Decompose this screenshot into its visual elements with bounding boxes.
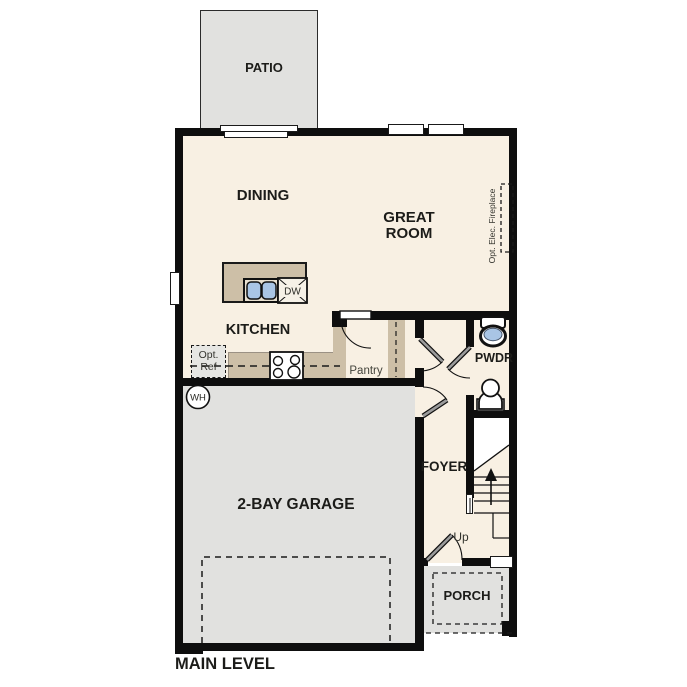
floor-plan: DW WH PATIO DINING GREAT ROOM KITCHEN Pa… bbox=[0, 0, 687, 687]
pantry-door-icon bbox=[340, 311, 371, 348]
room-label-foyer: FOYER bbox=[414, 459, 474, 474]
stairs bbox=[470, 418, 509, 538]
fireplace-label: Opt. Elec. Fireplace bbox=[487, 181, 497, 271]
dishwasher-label: DW bbox=[284, 287, 301, 298]
room-label-dining: DINING bbox=[213, 188, 313, 205]
kitchen-sink-icon bbox=[244, 279, 278, 302]
room-label-garage: 2-BAY GARAGE bbox=[236, 496, 356, 513]
fireplace-dashed-outline bbox=[501, 184, 513, 252]
stove-icon bbox=[270, 352, 303, 380]
pedestal-sink-icon bbox=[477, 380, 504, 412]
toilet-icon bbox=[481, 317, 506, 346]
garage-door-dashed-outline bbox=[202, 557, 390, 643]
plan-title: MAIN LEVEL bbox=[175, 655, 335, 673]
room-label-pantry: Pantry bbox=[336, 365, 396, 377]
room-label-kitchen: KITCHEN bbox=[208, 322, 308, 338]
room-label-great-room: GREAT ROOM bbox=[369, 210, 449, 242]
room-label-patio: PATIO bbox=[224, 61, 304, 76]
plan-symbols: DW WH bbox=[0, 0, 687, 687]
room-label-porch: PORCH bbox=[437, 589, 497, 604]
opt-ref-label: Opt. Ref bbox=[194, 349, 223, 373]
water-heater-label: WH bbox=[190, 393, 206, 404]
stairs-up-label: Up bbox=[446, 530, 476, 544]
stairs-up-arrow-icon bbox=[485, 468, 497, 505]
garage-entry-door-icon bbox=[423, 387, 447, 416]
room-label-pwdr: PWDR bbox=[464, 351, 524, 365]
hall-closet-door-icon bbox=[420, 339, 443, 371]
